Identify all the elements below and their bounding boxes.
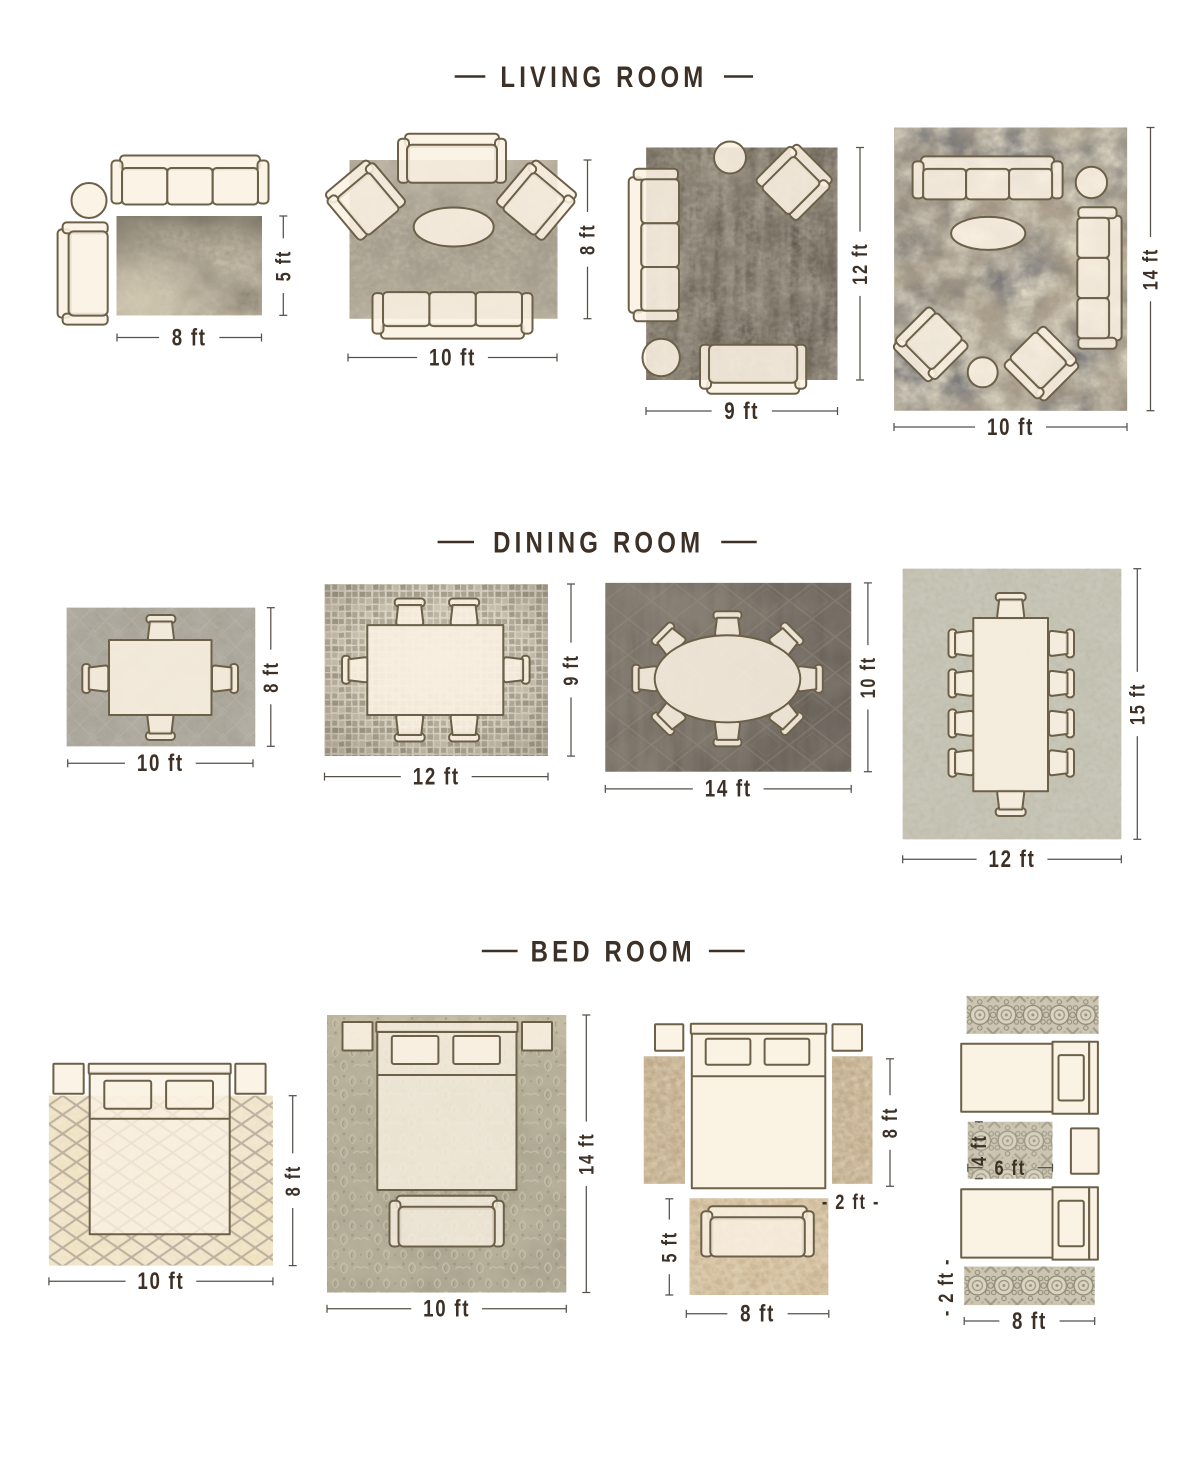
svg-text:DINING ROOM: DINING ROOM (493, 525, 704, 559)
svg-text:8 ft: 8 ft (281, 1165, 304, 1196)
svg-text:8 ft: 8 ft (740, 1300, 775, 1327)
svg-text:10 ft: 10 ft (423, 1295, 470, 1322)
svg-text:10 ft: 10 ft (856, 656, 879, 698)
svg-text:8 ft: 8 ft (1012, 1308, 1047, 1335)
svg-text:14 ft: 14 ft (705, 776, 752, 803)
svg-text:10 ft: 10 ft (137, 750, 184, 777)
svg-text:LIVING ROOM: LIVING ROOM (500, 59, 707, 93)
svg-text:- 2 ft -: - 2 ft - (934, 1258, 957, 1316)
svg-text:14 ft: 14 ft (575, 1133, 598, 1175)
svg-text:6 ft: 6 ft (994, 1156, 1025, 1179)
svg-text:10 ft: 10 ft (429, 344, 476, 371)
svg-text:12 ft: 12 ft (988, 846, 1035, 873)
svg-text:10 ft: 10 ft (137, 1268, 184, 1295)
svg-text:12 ft: 12 ft (413, 763, 460, 790)
svg-text:9 ft: 9 ft (724, 398, 759, 425)
svg-text:14 ft: 14 ft (1139, 248, 1162, 290)
svg-text:8 ft: 8 ft (172, 324, 207, 351)
svg-text:5 ft: 5 ft (658, 1231, 681, 1262)
svg-text:12 ft: 12 ft (848, 243, 871, 285)
svg-text:8 ft: 8 ft (576, 224, 599, 255)
svg-text:8 ft: 8 ft (259, 661, 282, 692)
svg-text:10 ft: 10 ft (987, 414, 1034, 441)
svg-text:- 2 ft -: - 2 ft - (822, 1190, 880, 1213)
svg-text:5 ft: 5 ft (272, 250, 295, 281)
svg-text:9 ft: 9 ft (559, 654, 582, 685)
svg-text:8 ft: 8 ft (878, 1107, 901, 1138)
svg-text:4 ft: 4 ft (967, 1135, 990, 1166)
svg-text:BED ROOM: BED ROOM (531, 934, 696, 968)
svg-text:15 ft: 15 ft (1126, 683, 1149, 725)
